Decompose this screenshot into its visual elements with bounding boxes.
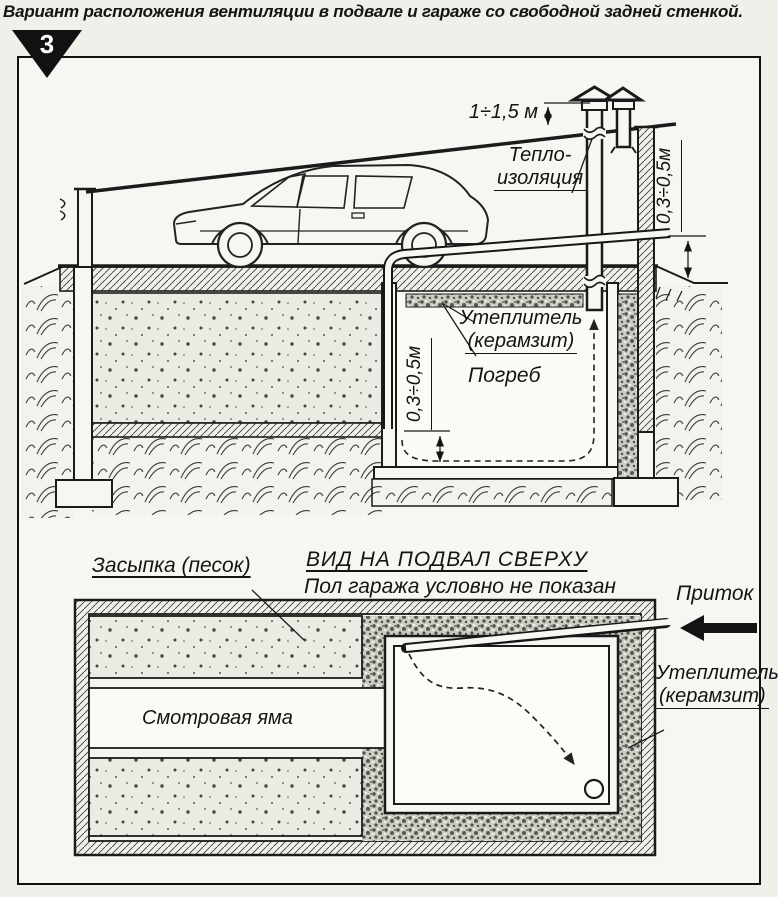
plan-cellar-inner <box>394 646 609 804</box>
cellar-floor-stones <box>372 479 612 506</box>
figure-number: 3 <box>12 31 82 57</box>
sand-base-slab <box>92 423 382 437</box>
cellar-label: Погреб <box>468 364 540 387</box>
ceiling-keramzit-layer <box>406 294 583 307</box>
left-foundation <box>74 267 92 480</box>
pipe-clearance-dimension: 0,3÷0,5м <box>404 338 432 430</box>
rear-wheel <box>402 223 446 267</box>
sand-backfill-section <box>92 293 382 423</box>
plan-insulation-label: Утеплитель (керамзит) <box>656 662 778 708</box>
plan-heading: ВИД НА ПОДВАЛ СВЕРХУ <box>306 548 588 571</box>
cellar-right-wall <box>607 283 618 479</box>
plan-subheading: Пол гаража условно не показан <box>304 575 616 598</box>
stack-height-dimension: 1÷1,5 м <box>462 101 538 124</box>
front-wheel <box>218 223 262 267</box>
plan-sand-bottom <box>89 758 362 836</box>
left-wall <box>78 189 92 267</box>
ceiling-insulation-label: Утеплитель (керамзит) <box>452 307 590 353</box>
cellar-floor <box>374 467 618 479</box>
inspection-pit-label: Смотровая яма <box>142 707 293 730</box>
ventilation-diagram <box>0 0 778 897</box>
duct-clearance-dimension: 0,3÷0,5м <box>654 140 682 232</box>
figure-title: Вариант расположения вентиляции в подвал… <box>3 2 775 22</box>
exhaust-pipe-opening <box>585 780 603 798</box>
plan-sand-top <box>89 616 362 678</box>
right-footing <box>614 478 678 506</box>
scanned-diagram-page: Вариант расположения вентиляции в подвал… <box>0 0 778 897</box>
inflow-label: Приток <box>676 582 753 605</box>
garage-floor-slab <box>60 267 656 291</box>
wall-keramzit-layer <box>618 294 638 479</box>
left-footing <box>56 480 112 507</box>
backfill-label: Засыпка (песок) <box>92 554 251 577</box>
thermal-insulation-label: Тепло- изоляция <box>486 144 594 190</box>
